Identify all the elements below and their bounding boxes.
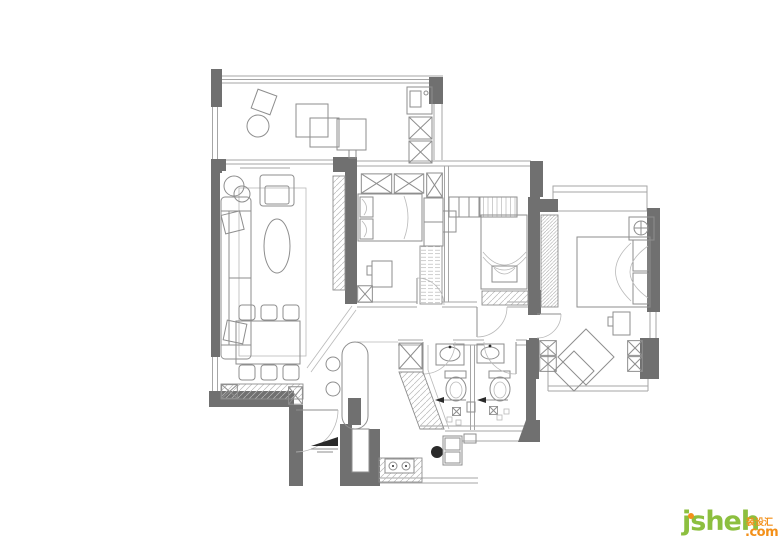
- fridge: [399, 343, 422, 369]
- bed-1: [358, 194, 422, 241]
- decor-diamond: [251, 89, 277, 115]
- counter-box: [464, 434, 476, 443]
- bed-2: [481, 215, 527, 289]
- master-bedroom: [537, 215, 654, 391]
- floor-plan: [0, 0, 780, 544]
- bar-stool: [326, 382, 340, 396]
- decor-frame-1: [296, 104, 328, 137]
- watermark-tld: .com: [745, 525, 778, 540]
- living-room: [221, 175, 356, 372]
- bedroom-1: [358, 173, 456, 305]
- sink-1: [436, 344, 464, 365]
- bar-counter: [326, 342, 368, 429]
- dining-chair: [283, 365, 299, 380]
- coffee-table: [264, 219, 290, 273]
- dining-chair: [261, 365, 277, 380]
- floor-drain: [456, 420, 461, 425]
- balcony: [247, 87, 432, 163]
- bay-diamond-large: [558, 329, 614, 385]
- dining-chair: [261, 305, 277, 320]
- round-basin: [431, 446, 443, 458]
- sofa-pillow: [221, 211, 244, 234]
- door-master: [537, 314, 561, 338]
- floor-drain: [497, 415, 502, 420]
- master-desk: [608, 312, 630, 335]
- stove-counter: [379, 458, 422, 482]
- cabinet-top: [427, 173, 443, 197]
- duct-shaft: [352, 429, 369, 472]
- watermark-logo: jsheh 装设汇 .com: [680, 506, 778, 542]
- dining-area: [221, 305, 303, 404]
- bed-rug: [482, 291, 528, 305]
- bar-column: [348, 398, 361, 424]
- sink-2: [477, 344, 504, 363]
- side-table: [224, 176, 250, 202]
- kitchen: [379, 343, 476, 482]
- floor-drain: [447, 417, 452, 422]
- washing-machine: [407, 87, 432, 114]
- toilet-1: [445, 371, 466, 401]
- bay-diamond-small: [554, 351, 594, 391]
- floor-divider: [311, 310, 356, 372]
- dining-chair: [283, 305, 299, 320]
- door-bedroom-2: [477, 307, 507, 337]
- dining-table: [236, 321, 300, 364]
- dining-chair: [239, 305, 255, 320]
- sofa-pillow: [223, 320, 247, 344]
- desk-1: [367, 261, 392, 287]
- floor-drain: [452, 407, 460, 415]
- cabinet-1: [424, 198, 456, 246]
- floor-drain: [489, 406, 497, 414]
- toilet-2: [489, 371, 510, 401]
- decor-frame-3: [337, 119, 366, 150]
- master-bed: [577, 237, 650, 307]
- dining-chair: [239, 365, 255, 380]
- headboard-cabinet: [361, 174, 391, 193]
- entry-arrow: [311, 437, 338, 452]
- tv-wall-shelf: [333, 176, 345, 290]
- armchair: [260, 175, 294, 206]
- kitchen-sink: [443, 436, 462, 465]
- floor-drain: [504, 409, 509, 414]
- bar-stool: [326, 357, 340, 371]
- bedroom-2: [449, 197, 528, 337]
- laundry-cabinet: [409, 117, 432, 163]
- decor-frame-2: [310, 118, 339, 147]
- headboard-cabinet: [394, 174, 423, 193]
- frame-stand: [349, 150, 356, 158]
- wardrobe-2: [449, 197, 517, 217]
- nightstand: [358, 286, 373, 303]
- floor-divider: [307, 306, 352, 368]
- watermark-dot-icon: [688, 513, 694, 519]
- shower-rail-2: [477, 397, 508, 403]
- wardrobe-1: [420, 246, 442, 304]
- decor-circle: [247, 115, 269, 137]
- master-wardrobe: [541, 215, 558, 307]
- bay-piers: [540, 341, 643, 372]
